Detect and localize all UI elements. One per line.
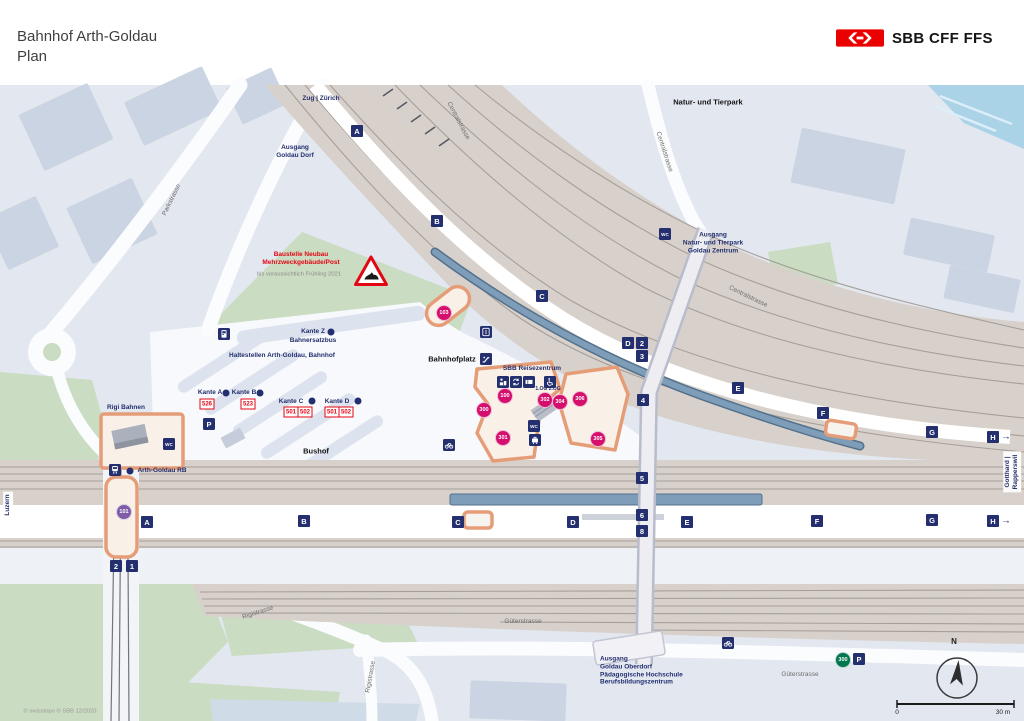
label-baustelle-note: bis voraussichtlich Frühling 2021 xyxy=(257,272,341,279)
sector-marker-e-7: E xyxy=(732,382,744,394)
sbb-logo: SBB CFF FFS xyxy=(836,29,993,47)
label-baustelle: Baustelle Neubau Mehrzweckgebäude/Post xyxy=(262,251,339,267)
wc-icon-rigi: WC xyxy=(163,438,175,450)
sector-marker-c-13: C xyxy=(452,516,464,528)
sector-marker-4-6: 4 xyxy=(637,394,649,406)
label-bushof: Bushof xyxy=(303,447,329,456)
page-title-line1: Bahnhof Arth-Goldau xyxy=(17,28,157,45)
sector-marker-8-21: 8 xyxy=(636,525,648,537)
sector-marker-d-3: D xyxy=(622,337,634,349)
label-scale-max: 30 m xyxy=(996,709,1010,717)
building-number-100-1: 100 xyxy=(497,388,513,404)
counter-icon-reisezentrum xyxy=(497,376,509,388)
sector-marker-b-1: B xyxy=(431,215,443,227)
sector-marker-3-5: 3 xyxy=(636,350,648,362)
label-kante-z: Kante Z xyxy=(301,328,325,336)
sector-marker-6-20: 6 xyxy=(636,509,648,521)
luggage-icon-reisezentrum xyxy=(529,434,541,446)
sector-marker-c-2: C xyxy=(536,290,548,302)
map-base xyxy=(0,0,1024,721)
label-gueterstrasse-1: Güterstrasse xyxy=(504,618,541,626)
label-bahnersatzbus: Bahnersatzbus xyxy=(290,337,337,345)
parking-icon-gueterstrasse: P xyxy=(853,653,865,665)
building-number-304-5: 304 xyxy=(552,394,568,410)
bus-route-502-3: 502 xyxy=(298,407,313,418)
sector-marker-a-0: A xyxy=(351,125,363,137)
bus-stop-dot-kante-z xyxy=(328,329,335,336)
sector-marker-2-4: 2 xyxy=(636,337,648,349)
page-title-line2: Plan xyxy=(17,48,47,65)
building-number-306-6: 306 xyxy=(572,391,588,407)
wc-icon-tierpark: WC xyxy=(659,228,671,240)
ticket-machine-icon-kante-z xyxy=(218,328,230,340)
wc-icon-reisezentrum: WC xyxy=(528,420,540,432)
label-ausgang-goldau-dorf: Ausgang Goldau Dorf xyxy=(276,144,314,160)
sector-marker-h-18: H xyxy=(987,515,999,527)
label-kante-d: Kante D xyxy=(325,398,350,406)
label-zug-zuerich: Zug | Zürich xyxy=(302,95,339,103)
label-haltestellen: Haltestellen Arth-Goldau, Bahnhof xyxy=(229,352,335,360)
label-ausgang-tierpark: Ausgang Natur- und Tierpark Goldau Zentr… xyxy=(683,231,743,254)
sector-marker-e-15: E xyxy=(681,516,693,528)
sector-marker-a-11: A xyxy=(141,516,153,528)
wheelchair-icon-reisezentrum xyxy=(544,376,556,388)
exchange-icon-reisezentrum xyxy=(510,376,522,388)
train-icon-arth-goldau-rb xyxy=(109,464,121,476)
sector-marker-h-10: H xyxy=(987,431,999,443)
label-compass-north: N xyxy=(951,637,957,647)
bus-route-501-4: 501 xyxy=(325,407,340,418)
station-plan-page: Bahnhof Arth-GoldauPlan SBB CFF FFS Zug … xyxy=(0,0,1024,721)
direction-arrow-18: → xyxy=(1001,516,1011,527)
bus-stop-dot-kante-c xyxy=(309,398,316,405)
sbb-logo-text: SBB CFF FFS xyxy=(892,30,993,47)
direction-arrow-10: → xyxy=(1001,432,1011,443)
label-scale-zero: 0 xyxy=(895,709,899,717)
building-number-301-3: 301 xyxy=(495,430,511,446)
label-copyright: © swisstopo © SBB 12/2020 xyxy=(24,709,97,716)
bus-stop-dot-arth-goldau-rb xyxy=(127,468,134,475)
label-kante-c: Kante C xyxy=(279,398,304,406)
sector-marker-f-16: F xyxy=(811,515,823,527)
label-natur-und-tierpark: Natur- und Tierpark xyxy=(673,98,742,107)
escalator-icon-platform xyxy=(480,353,492,365)
building-number-300-2: 300 xyxy=(476,402,492,418)
label-rigi-bahnen: Rigi Bahnen xyxy=(107,404,145,412)
label-bahnhofplatz: Bahnhofplatz xyxy=(428,355,476,364)
sector-marker-1-23: 1 xyxy=(126,560,138,572)
label-sbb-reisezentrum: SBB Reisezentrum xyxy=(503,365,561,373)
building-number-300-9: 300 xyxy=(835,652,851,668)
sector-marker-g-17: G xyxy=(926,514,938,526)
label-gotthard-rapperswil: Gotthard | Rapperswil xyxy=(1003,452,1021,493)
parking-icon-bushof: P xyxy=(203,418,215,430)
building-number-101-8: 101 xyxy=(116,504,132,520)
label-kante-b: Kante B xyxy=(232,389,257,397)
sector-marker-5-19: 5 xyxy=(636,472,648,484)
label-ausgang-oberdorf: Ausgang Goldau Oberdorf Pädagogische Hoc… xyxy=(600,655,683,686)
bus-route-502-5: 502 xyxy=(339,407,354,418)
ticket-icon-reisezentrum xyxy=(523,376,535,388)
building-number-302-4: 302 xyxy=(537,392,553,408)
construction-icon xyxy=(354,254,388,288)
bus-stop-dot-kante-a xyxy=(223,390,230,397)
bicycle-icon-gueterstrasse xyxy=(722,637,734,649)
label-luzern: Luzern xyxy=(3,491,13,518)
bus-route-526-0: 526 xyxy=(200,399,215,410)
sector-marker-g-9: G xyxy=(926,426,938,438)
building-number-103-0: 103 xyxy=(436,305,452,321)
label-arth-goldau-rb: Arth-Goldau RB xyxy=(137,467,186,475)
sector-marker-d-14: D xyxy=(567,516,579,528)
bus-route-501-2: 501 xyxy=(284,407,299,418)
label-kante-a: Kante A xyxy=(198,389,222,397)
bicycle-icon-bahnhofplatz xyxy=(443,439,455,451)
page-title: Bahnhof Arth-GoldauPlan xyxy=(17,27,157,67)
sector-marker-f-8: F xyxy=(817,407,829,419)
building-number-305-7: 305 xyxy=(590,431,606,447)
bus-stop-dot-kante-b xyxy=(257,390,264,397)
lift-icon-platform xyxy=(480,326,492,338)
sbb-logo-icon xyxy=(836,29,884,47)
sector-marker-b-12: B xyxy=(298,515,310,527)
bus-stop-dot-kante-d xyxy=(355,398,362,405)
label-gueterstrasse-2: Güterstrasse xyxy=(781,671,818,679)
bus-route-523-1: 523 xyxy=(241,399,256,410)
sector-marker-2-22: 2 xyxy=(110,560,122,572)
